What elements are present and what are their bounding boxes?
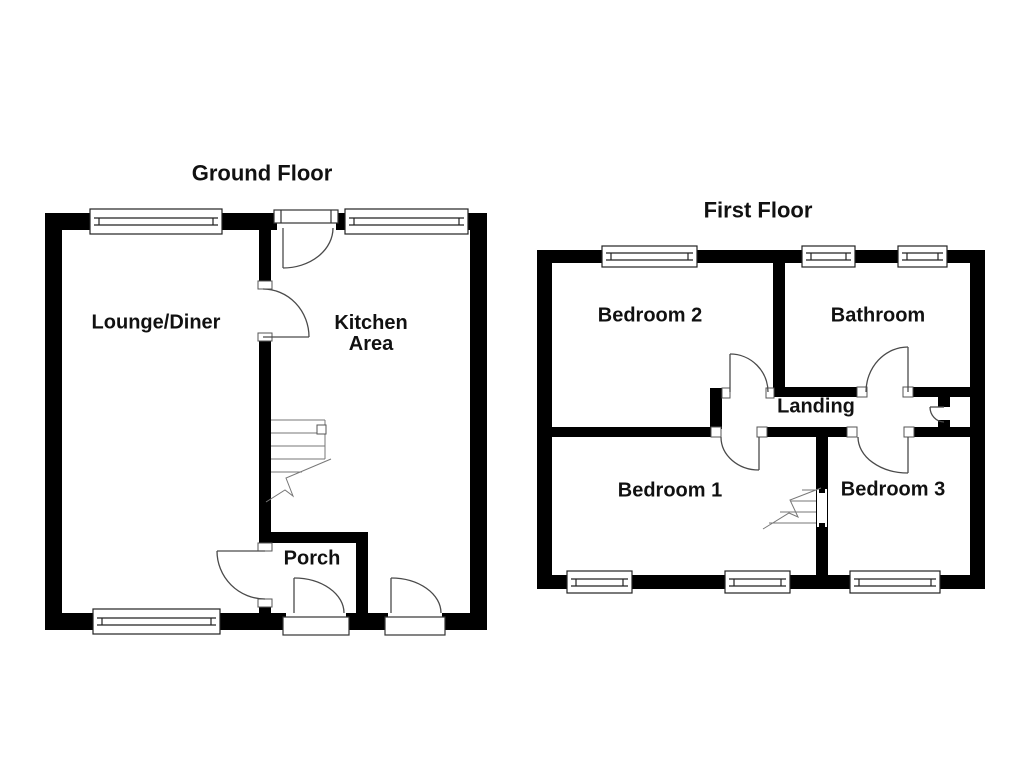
room-label-porch: Porch [284,549,341,570]
ground-floor-walls [45,213,487,630]
porch-exterior-door [294,578,344,613]
room-label-bedroom1: Bedroom 1 [618,481,722,502]
first-floor-walls [537,250,985,589]
window-symbol [850,571,940,593]
bathroom-door [866,347,908,392]
window-symbols-ground [90,209,468,634]
floor-title-ground: Ground Floor [192,163,333,184]
room-label-bedroom3: Bedroom 3 [841,480,945,501]
staircase-symbol-first [763,488,821,529]
window-symbol [602,246,697,267]
window-symbol [90,209,222,234]
window-symbol [802,246,855,267]
window-symbol [345,209,468,234]
window-symbol [93,609,220,634]
floorplan-drawing [0,0,1024,768]
bedroom2-door [730,354,768,392]
room-label-landing: Landing [777,397,855,418]
room-label-kitchen-area: Kitchen Area [321,313,421,355]
window-symbols-first [567,246,947,593]
porch-lounge-door [217,551,265,599]
room-label-bedroom2: Bedroom 2 [598,306,702,327]
room-label-bathroom: Bathroom [831,306,925,327]
kitchen-exterior-door [391,578,441,613]
kitchen-door [263,289,309,337]
cupboard-door [930,407,944,422]
first-floor-plan [537,246,985,593]
bedroom3-door [858,437,908,473]
window-symbol [898,246,947,267]
bedroom1-door [721,437,759,470]
window-symbol [567,571,632,593]
stairwell-opening [817,489,827,527]
floorplan-page: Ground Floor First Floor Lounge/Diner Ki… [0,0,1024,768]
floor-title-first: First Floor [704,200,813,221]
staircase-symbol-ground [266,420,331,502]
window-symbol [725,571,790,593]
ground-floor-plan [45,209,487,635]
room-label-lounge-diner: Lounge/Diner [92,313,221,334]
front-entrance-door [283,228,333,268]
